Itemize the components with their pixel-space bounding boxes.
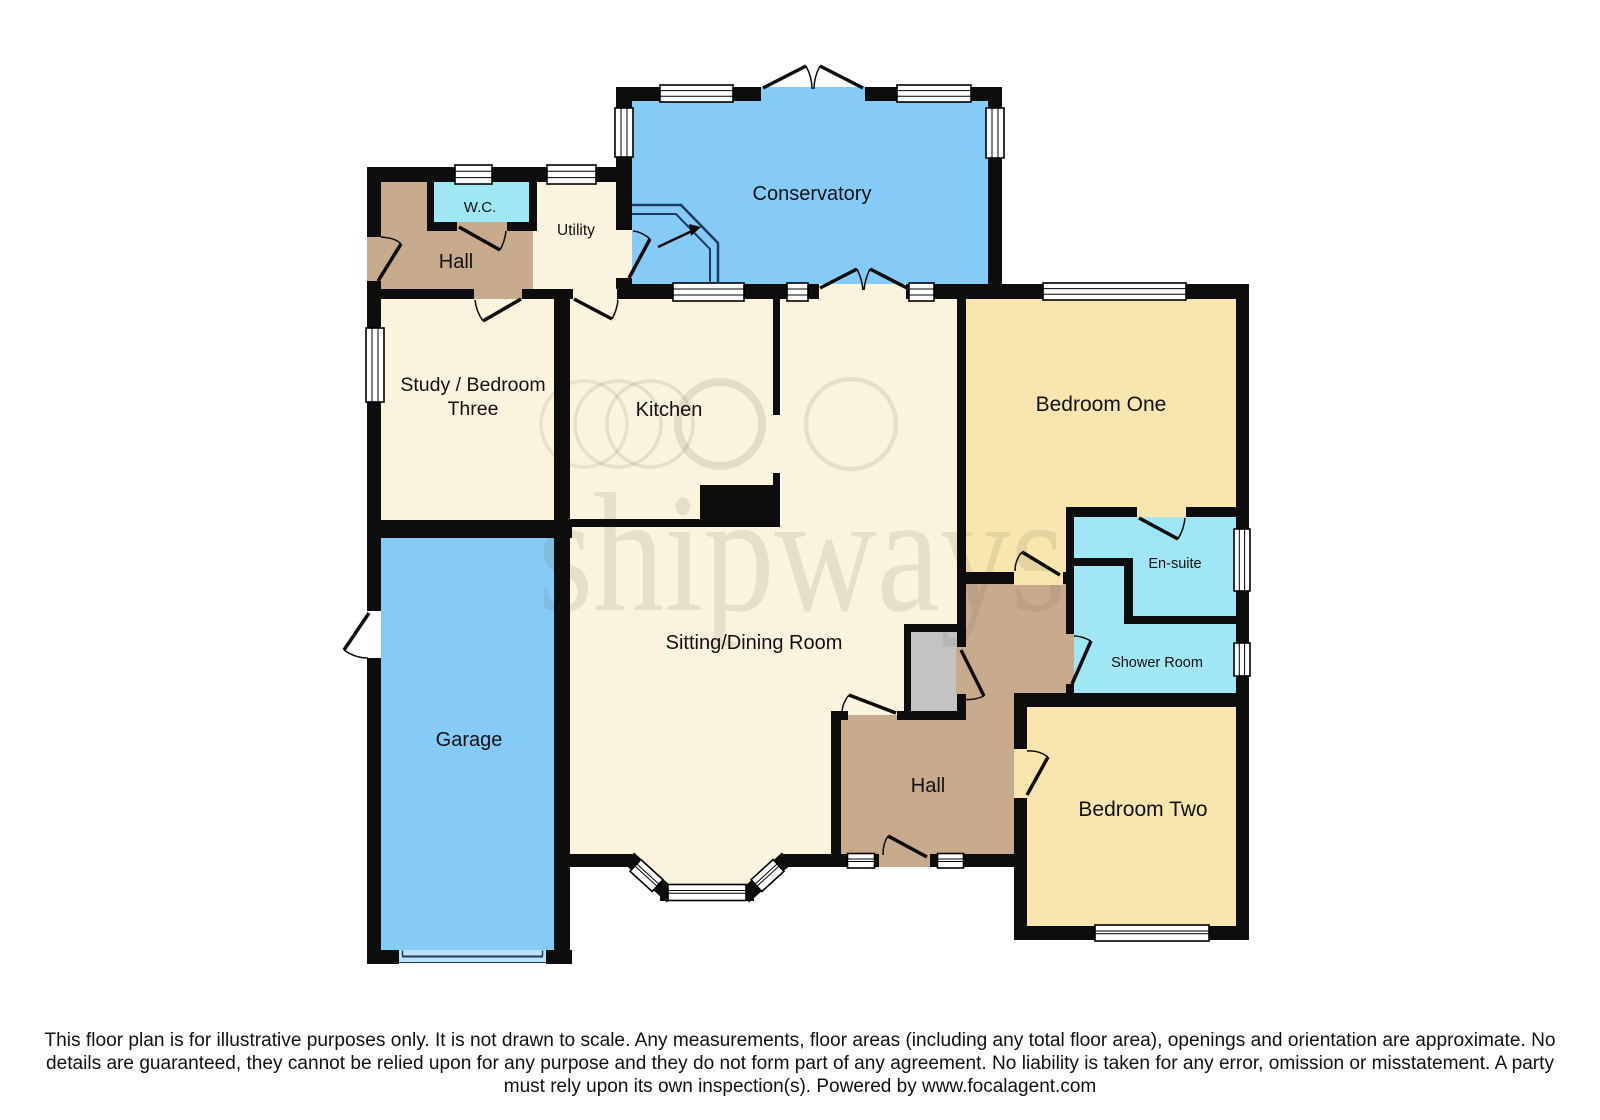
svg-text:Study / Bedroom: Study / Bedroom <box>400 374 545 396</box>
svg-text:details are guaranteed, they c: details are guaranteed, they cannot be r… <box>46 1053 1554 1074</box>
svg-text:En-suite: En-suite <box>1148 556 1201 572</box>
svg-text:Sitting/Dining Room: Sitting/Dining Room <box>666 632 843 654</box>
svg-text:must rely upon its own inspect: must rely upon its own inspection(s). Po… <box>504 1076 1096 1097</box>
svg-text:Three: Three <box>448 398 499 420</box>
svg-text:This floor plan is for illustr: This floor plan is for illustrative purp… <box>45 1030 1556 1051</box>
svg-text:Conservatory: Conservatory <box>753 183 872 205</box>
svg-text:Kitchen: Kitchen <box>636 399 703 421</box>
svg-text:Hall: Hall <box>439 251 473 273</box>
svg-text:Shower Room: Shower Room <box>1111 655 1203 671</box>
svg-text:Utility: Utility <box>557 222 595 239</box>
svg-text:Hall: Hall <box>911 775 945 797</box>
svg-text:Bedroom One: Bedroom One <box>1036 393 1167 416</box>
svg-text:Bedroom Two: Bedroom Two <box>1078 798 1207 821</box>
svg-text:shipways: shipways <box>538 459 1066 647</box>
svg-text:W.C.: W.C. <box>464 199 497 216</box>
svg-text:Garage: Garage <box>436 729 503 751</box>
